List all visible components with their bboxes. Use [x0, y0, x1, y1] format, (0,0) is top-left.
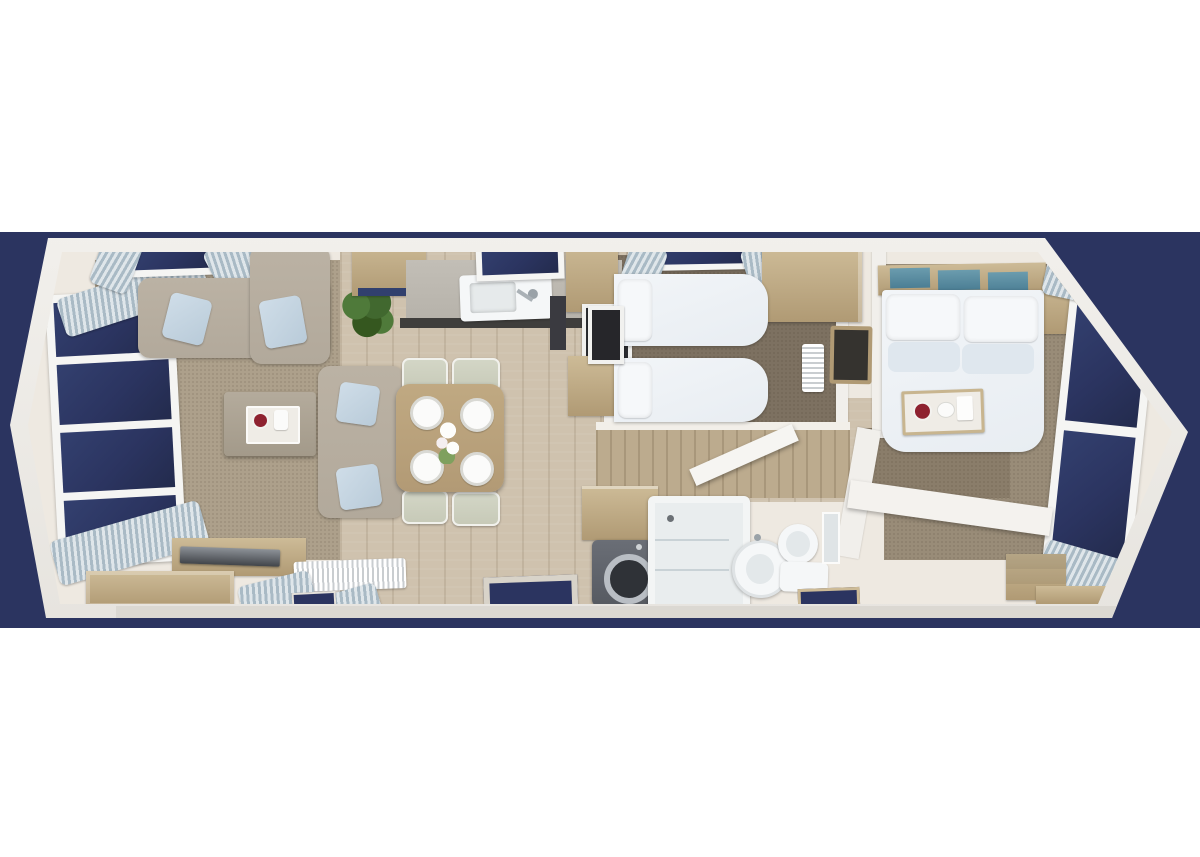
twin-wall-tv [588, 306, 624, 364]
bed-pillow [886, 294, 960, 340]
bed-pillow [618, 362, 652, 418]
hall-radiator [802, 344, 824, 392]
window-pane [57, 359, 172, 425]
washing-machine [592, 540, 652, 606]
hall-mirror [829, 326, 872, 385]
sofa-cushion [335, 381, 380, 426]
coffee-table [224, 392, 316, 456]
breakfast-tray [901, 389, 984, 436]
floorplan-scene [0, 0, 1200, 857]
place-setting [460, 452, 494, 486]
twin-overhead-wardrobe [762, 248, 862, 322]
fridge-gap [550, 296, 566, 350]
basin-faucet [754, 534, 761, 541]
bathroom-wall-top-edge [596, 422, 850, 430]
flatscreen-tv [180, 546, 281, 566]
red-cup [913, 401, 933, 421]
storage-bench [86, 571, 234, 607]
sink-basin [469, 282, 516, 314]
sofa-cushion [335, 463, 382, 510]
toilet-seat [786, 531, 810, 557]
bedroom-step-unit [1036, 586, 1108, 604]
window-pane [1051, 430, 1136, 561]
washer-control [636, 544, 642, 550]
flower-vase [436, 422, 460, 464]
plate [937, 402, 956, 419]
place-setting [460, 398, 494, 432]
exterior-bottom-wall [116, 606, 1116, 620]
dining-chair [402, 490, 448, 524]
shower-glass-line [655, 539, 729, 541]
book [956, 396, 973, 421]
headboard-glass-panel [938, 270, 980, 291]
bathroom-mirror [822, 512, 840, 564]
dining-chair [452, 492, 500, 526]
utility-cupboard [582, 486, 658, 540]
shower-head [667, 515, 674, 522]
bed-pillow [962, 344, 1034, 374]
sofa-cushion [258, 295, 308, 350]
toilet-bowl [778, 524, 818, 564]
red-cup [252, 412, 269, 429]
single-bed [614, 274, 768, 346]
single-bed [614, 358, 768, 422]
caravan-interior [0, 0, 1200, 857]
kitchen-tall-unit-lower [568, 356, 614, 416]
dining-table [396, 384, 504, 492]
basin-bowl [746, 554, 774, 584]
bed-pillow [964, 296, 1038, 342]
tea-pot [274, 410, 288, 430]
shower-glass-line [655, 569, 729, 571]
bed-pillow [888, 342, 960, 372]
headboard-glass-panel [890, 268, 930, 289]
window-pane [60, 427, 175, 493]
washer-door [604, 554, 654, 604]
